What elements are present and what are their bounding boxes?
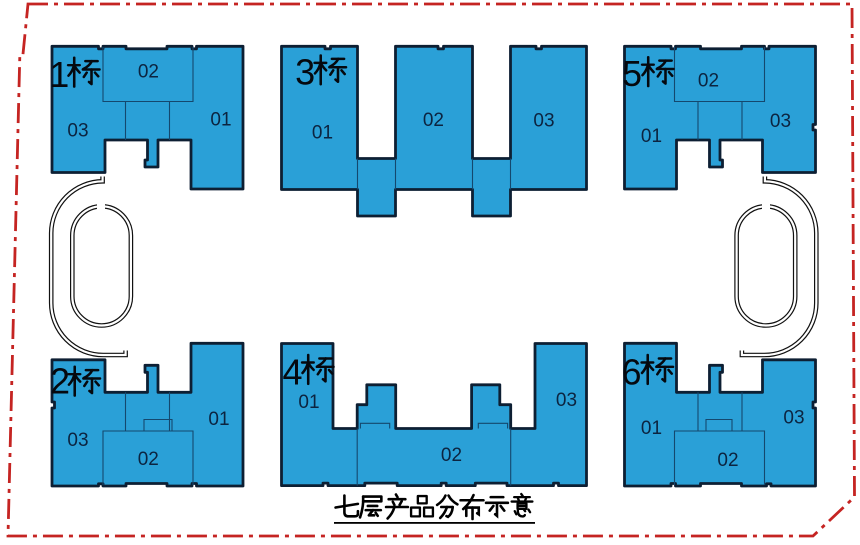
svg-text:01: 01 xyxy=(312,123,333,144)
svg-text:4: 4 xyxy=(282,352,302,393)
svg-text:03: 03 xyxy=(67,121,88,142)
svg-text:01: 01 xyxy=(641,418,662,439)
svg-text:03: 03 xyxy=(67,430,88,451)
svg-text:01: 01 xyxy=(208,409,229,430)
svg-text:03: 03 xyxy=(533,111,554,132)
svg-text:02: 02 xyxy=(138,449,159,470)
svg-text:02: 02 xyxy=(441,445,462,466)
svg-text:01: 01 xyxy=(298,392,319,413)
svg-text:03: 03 xyxy=(783,408,804,429)
svg-text:5: 5 xyxy=(622,53,642,94)
svg-text:03: 03 xyxy=(770,111,791,132)
svg-text:01: 01 xyxy=(210,110,231,131)
svg-text:02: 02 xyxy=(717,450,738,471)
svg-text:1: 1 xyxy=(49,54,69,95)
svg-text:3: 3 xyxy=(295,52,315,93)
svg-text:01: 01 xyxy=(641,126,662,147)
svg-text:02: 02 xyxy=(138,61,159,82)
svg-text:2: 2 xyxy=(50,361,70,402)
svg-text:02: 02 xyxy=(423,110,444,131)
svg-text:03: 03 xyxy=(556,390,577,411)
svg-text:6: 6 xyxy=(621,352,641,393)
svg-text:02: 02 xyxy=(698,71,719,92)
